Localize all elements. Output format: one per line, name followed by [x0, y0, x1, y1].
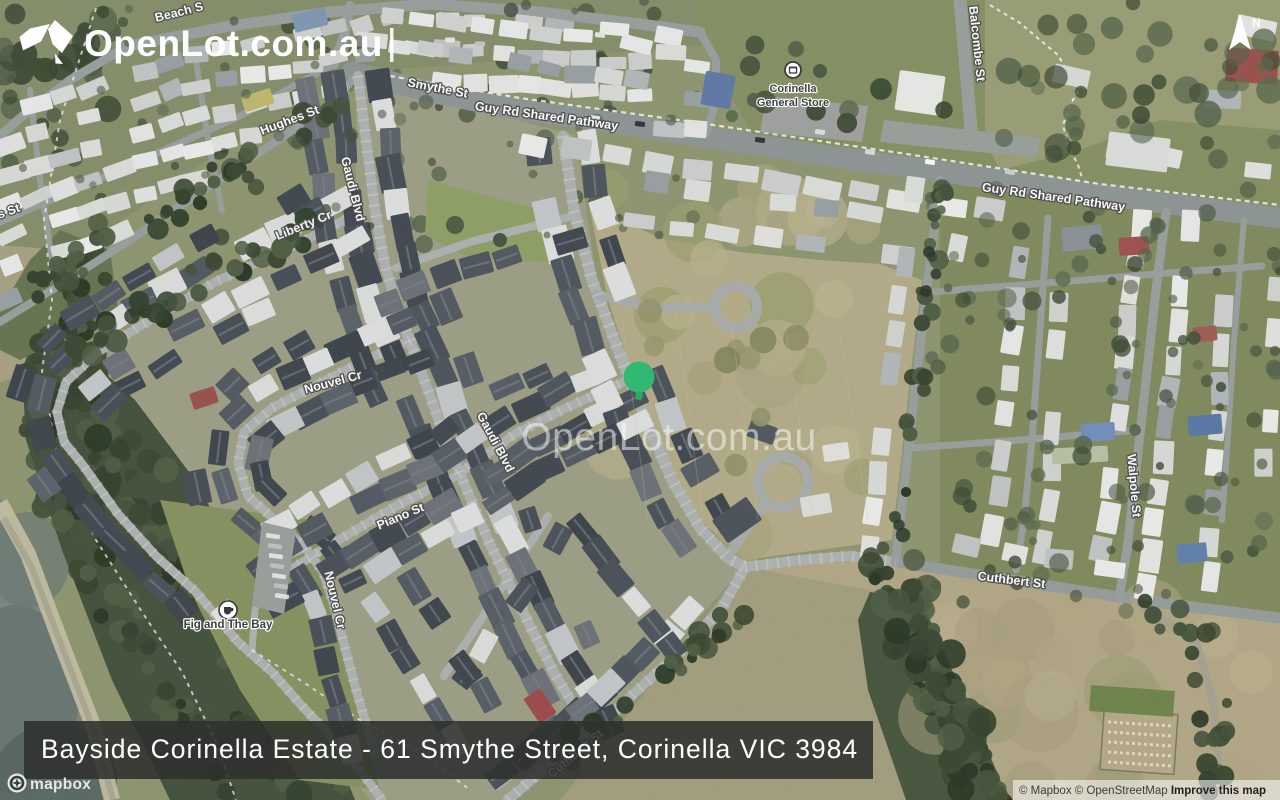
svg-text:mapbox: mapbox [30, 776, 91, 793]
svg-text:Bayside Corinella Estate - 61: Bayside Corinella Estate - 61 Smythe Str… [41, 734, 858, 764]
svg-text:OpenLot.com.au: OpenLot.com.au [521, 416, 816, 459]
svg-text:© Mapbox © OpenStreetMap Impro: © Mapbox © OpenStreetMap Improve this ma… [1019, 785, 1266, 797]
svg-text:N: N [1252, 16, 1261, 30]
svg-text:Corinella: Corinella [769, 83, 817, 95]
svg-text:OpenLot.com.au: OpenLot.com.au [84, 23, 383, 64]
svg-text:General Store: General Store [757, 97, 829, 109]
svg-text:Fig and The Bay: Fig and The Bay [184, 619, 273, 631]
